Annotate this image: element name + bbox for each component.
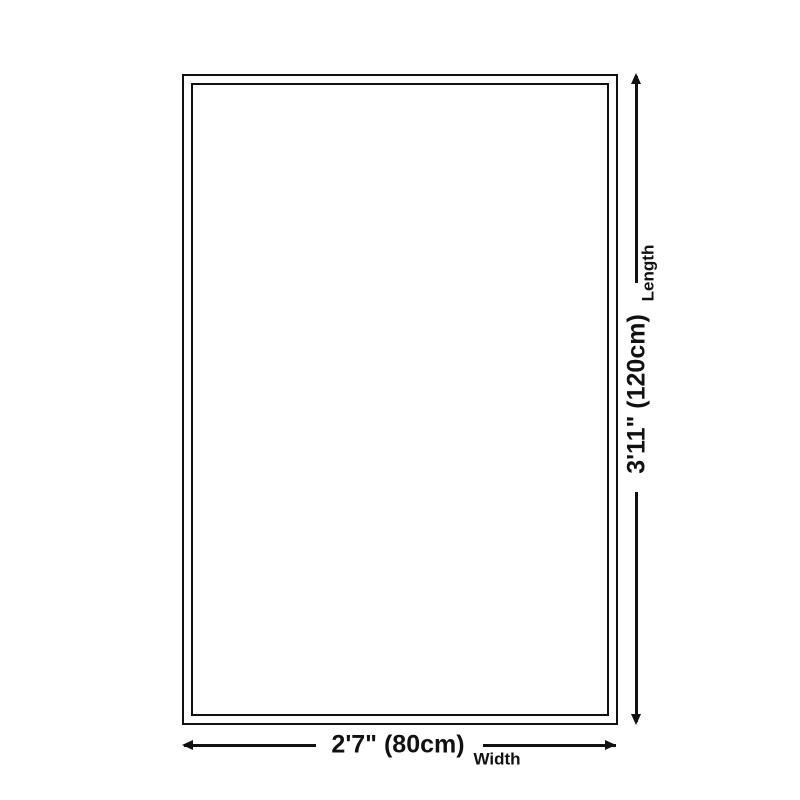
rug-outline: [182, 74, 618, 725]
length-value: 3'11" (120cm): [623, 308, 651, 480]
length-arrow-line-bottom: [635, 492, 638, 722]
width-value: 2'7" (80cm): [325, 731, 470, 759]
arrow-right-icon: [605, 740, 616, 750]
length-label: Length: [640, 245, 659, 302]
width-arrow-line-left: [184, 744, 316, 747]
size-diagram: 3'11" (120cm) Length 2'7" (80cm) Width: [0, 0, 800, 800]
length-arrow-line-top: [635, 76, 638, 283]
rug-inner-border: [191, 83, 609, 716]
width-arrow-line-right: [483, 744, 616, 747]
width-label: Width: [473, 751, 520, 770]
arrow-down-icon: [631, 714, 641, 725]
